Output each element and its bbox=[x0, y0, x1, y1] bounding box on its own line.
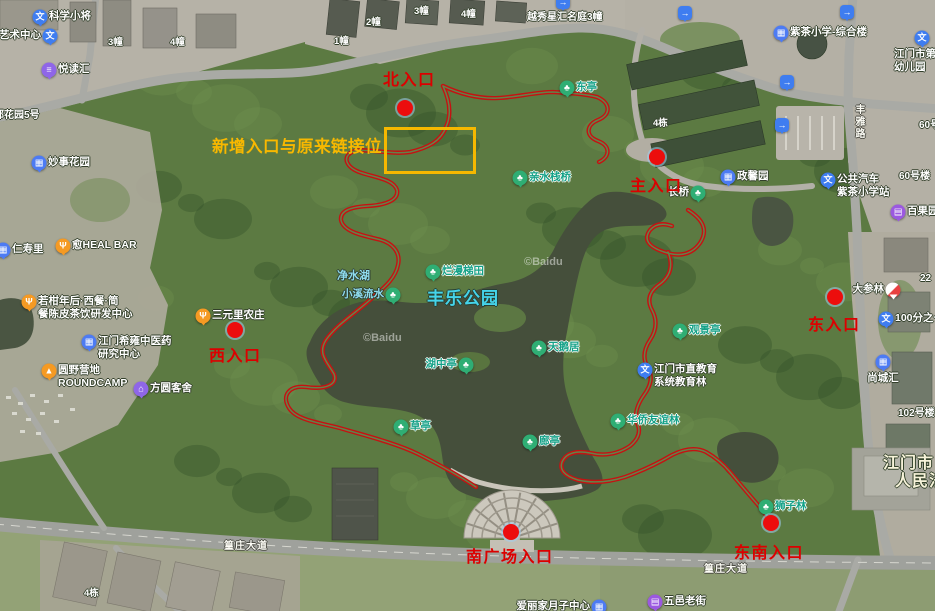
poi-zhongyiyao-label: 江门希雍中医药研究中心 bbox=[98, 335, 172, 360]
yuhuayuan5: 郁花园5号 bbox=[0, 110, 40, 122]
entrance-label-主入口: 主入口 bbox=[630, 172, 683, 196]
poi-baiguoyuan-label: 百果园 bbox=[907, 205, 935, 218]
edu-icon[interactable]: 文 bbox=[43, 29, 58, 44]
biz-icon[interactable]: ▦ bbox=[876, 355, 891, 370]
poi-ruogannian-label: 若柑年后·西餐·简餐陈皮茶饮研发中心 bbox=[38, 295, 133, 320]
food-icon[interactable]: Ψ bbox=[196, 309, 211, 324]
yuexiu-xinghui: 越秀星汇名庭3幢 bbox=[527, 12, 603, 24]
poi-renshouli-label: 仁寿里 bbox=[12, 243, 44, 256]
bldg-4dong-s: 4栋 bbox=[84, 588, 99, 599]
poi-kexuexiaojiang-label: 科学小将 bbox=[49, 10, 91, 23]
poi-wuyilaojie-label: 五邑老街 bbox=[664, 595, 706, 608]
poi-langting-label: 廊亭 bbox=[539, 435, 560, 448]
shop-icon[interactable]: ▤ bbox=[891, 205, 906, 220]
food-icon[interactable]: Ψ bbox=[22, 295, 37, 310]
tree-icon[interactable]: ♣ bbox=[532, 341, 547, 356]
satellite-map-canvas[interactable]: 文科学小将文艺术中心≡悦读汇▦妙事花园▦仁寿里Ψ愈HEAL BARΨ若柑年后·西… bbox=[0, 0, 935, 611]
tree-icon[interactable]: ♣ bbox=[386, 288, 401, 303]
biz-icon[interactable]: ▦ bbox=[721, 170, 736, 185]
poi-zicha-school-label: 紫茶小学-综合楼 bbox=[790, 26, 867, 39]
poi-xiaoxiliushui-label: 小溪流水 bbox=[342, 288, 384, 301]
court-line1: 江门市 bbox=[883, 454, 934, 473]
bldg-4zhuang-w: 4幢 bbox=[170, 37, 185, 48]
biz-icon[interactable]: ▦ bbox=[82, 335, 97, 350]
tree-icon[interactable]: ♣ bbox=[459, 358, 474, 373]
poi-tianeju-label: 天鹅居 bbox=[548, 341, 580, 354]
entrance-exit-icon[interactable]: → bbox=[775, 118, 789, 132]
baidu-watermark: ©Baidu bbox=[524, 256, 563, 268]
park-name: 丰乐公园 bbox=[427, 289, 499, 309]
poi-jiaoyulin-label: 江门市直教育系统教育林 bbox=[654, 363, 717, 388]
biz-icon[interactable]: ▦ bbox=[32, 156, 47, 171]
highlight-box bbox=[384, 127, 476, 174]
poi-yishuzhongxin-label: 艺术中心 bbox=[0, 29, 41, 42]
entrance-label-西入口: 西入口 bbox=[209, 342, 262, 366]
poi-fangyuankeshe-label: 方圆客舍 bbox=[150, 382, 192, 395]
entrance-label-北入口: 北入口 bbox=[383, 66, 436, 90]
poi-qinshuizhanqiao-label: 亲水栈桥 bbox=[529, 171, 571, 184]
book-icon[interactable]: ≡ bbox=[42, 63, 57, 78]
annotation-note: 新增入口与原来链接位 bbox=[212, 133, 382, 157]
edu-icon[interactable]: 文 bbox=[879, 312, 894, 327]
edu-icon[interactable]: 文 bbox=[821, 173, 836, 188]
bldg-60hao: 60号楼 bbox=[899, 171, 930, 183]
poi-huaqiaoyouyilin-label: 华侨友谊林 bbox=[627, 414, 680, 427]
tree-icon[interactable]: ♣ bbox=[513, 171, 528, 186]
entrance-dot-西入口 bbox=[227, 322, 243, 338]
tree-icon[interactable]: ♣ bbox=[691, 186, 706, 201]
road-huangzhuang-w: 篁庄大道 bbox=[224, 541, 268, 553]
poi-ailijia-label: 爱丽家月子中心 bbox=[517, 600, 591, 611]
edu-icon[interactable]: 文 bbox=[33, 10, 48, 25]
poi-bus-stop-label: 公共汽车紫茶小学站 bbox=[837, 173, 890, 198]
tree-icon[interactable]: ♣ bbox=[673, 324, 688, 339]
entrance-exit-icon[interactable]: → bbox=[556, 0, 570, 9]
baidu-watermark: ©Baidu bbox=[363, 332, 402, 344]
edu-icon[interactable]: 文 bbox=[915, 31, 930, 46]
poi-shizilin-label: 狮子林 bbox=[775, 500, 807, 513]
poi-huzhongting-label: 湖中亭 bbox=[426, 358, 458, 371]
school-icon[interactable]: ▦ bbox=[774, 26, 789, 41]
tree-icon[interactable]: ♣ bbox=[560, 81, 575, 96]
poi-heal-bar-label: 愈HEAL BAR bbox=[72, 239, 137, 252]
poi-shangchenghui-label: 尚城汇 bbox=[867, 372, 899, 385]
jingshuihu: 净水湖 bbox=[337, 270, 370, 283]
poi-roundcamp-label: 圆野营地ROUNDCAMP bbox=[58, 364, 127, 389]
entrance-exit-icon[interactable]: → bbox=[780, 75, 794, 89]
poi-youeryuan-label: 江门市第幼儿园 bbox=[894, 48, 935, 73]
hotel-icon[interactable]: ⌂ bbox=[134, 382, 149, 397]
bldg-60hao-b: 60号楼 bbox=[919, 120, 935, 132]
bldg-2zhuang: 2幢 bbox=[366, 17, 381, 28]
poi-dashenlin-label: 大参林 bbox=[853, 283, 885, 296]
tree-icon[interactable]: ♣ bbox=[394, 420, 409, 435]
tree-icon[interactable]: ♣ bbox=[523, 435, 538, 450]
bldg-102hao: 102号楼 bbox=[898, 408, 935, 420]
entrance-label-南广场入口: 南广场入口 bbox=[466, 543, 554, 567]
entrance-dot-东入口 bbox=[827, 289, 843, 305]
tree-icon[interactable]: ♣ bbox=[611, 414, 626, 429]
biz-icon[interactable]: ▦ bbox=[592, 600, 607, 611]
poi-miaoshihuayuan-label: 妙事花园 bbox=[48, 156, 90, 169]
poi-guanjingting-label: 观景亭 bbox=[689, 324, 721, 337]
entrance-label-东入口: 东入口 bbox=[808, 311, 861, 335]
bldg-4dong: 4栋 bbox=[653, 118, 668, 129]
pharm-icon[interactable] bbox=[886, 283, 901, 298]
poi-zhengxinyuan-label: 政馨园 bbox=[737, 170, 769, 183]
entrance-dot-北入口 bbox=[397, 100, 413, 116]
shop-icon[interactable]: ▤ bbox=[648, 595, 663, 610]
poi-lanmantitian-label: 烂漫梯田 bbox=[442, 265, 484, 278]
poi-sanyuanli-label: 三元里农庄 bbox=[212, 309, 265, 322]
entrance-label-东南入口: 东南入口 bbox=[734, 539, 804, 563]
entrance-dot-东南入口 bbox=[763, 515, 779, 531]
road-fengyalu: 丰雅路 bbox=[852, 104, 864, 140]
edu-icon[interactable]: 文 bbox=[638, 363, 653, 378]
bldg-3zhuang-w: 3幢 bbox=[108, 37, 123, 48]
poi-caoting-label: 草亭 bbox=[410, 420, 431, 433]
road-huangzhuang-e: 篁庄大道 bbox=[704, 564, 748, 576]
entrance-exit-icon[interactable]: → bbox=[678, 6, 692, 20]
entrance-dot-南广场入口 bbox=[503, 524, 519, 540]
tree-icon[interactable]: ♣ bbox=[759, 500, 774, 515]
tree-icon[interactable]: ♣ bbox=[426, 265, 441, 280]
bldg-3zhuang: 3幢 bbox=[414, 6, 429, 17]
camp-icon[interactable]: ▲ bbox=[42, 364, 57, 379]
entrance-exit-icon[interactable]: → bbox=[840, 5, 854, 19]
entrance-dot-主入口 bbox=[649, 149, 665, 165]
court-line2: 人民法院 bbox=[895, 472, 935, 491]
poi-100fenzhiyi-label: 100分之一 bbox=[895, 312, 935, 325]
bldg-1zhuang: 1幢 bbox=[334, 36, 349, 47]
bldg-4zhuang: 4幢 bbox=[461, 9, 476, 20]
bldg-22: 22 bbox=[920, 273, 931, 285]
food-icon[interactable]: Ψ bbox=[56, 239, 71, 254]
poi-dongting-label: 东亭 bbox=[576, 81, 597, 94]
poi-yueduhui-label: 悦读汇 bbox=[58, 63, 90, 76]
